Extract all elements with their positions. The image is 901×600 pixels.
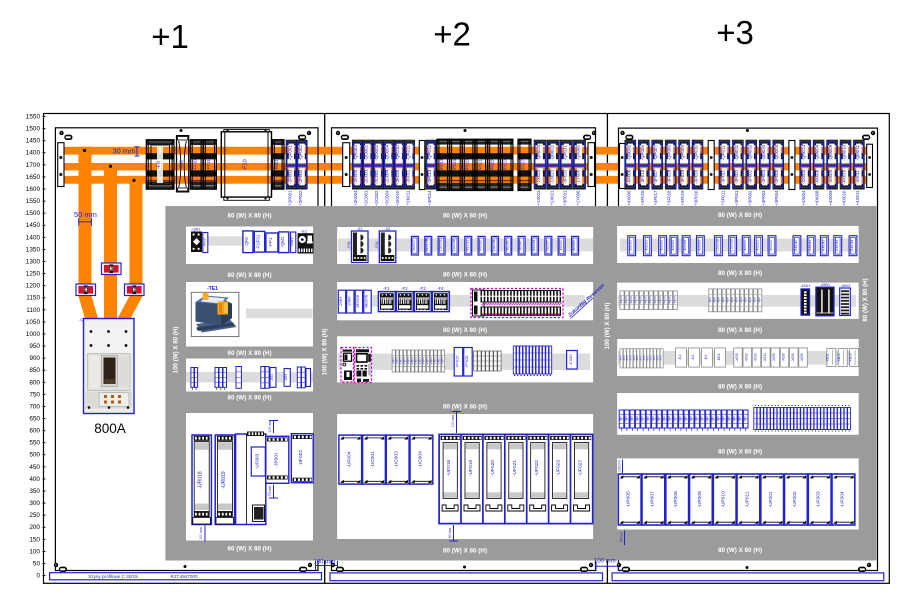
svg-text:-4X0: -4X0: [739, 297, 743, 304]
svg-text:800: 800: [29, 379, 40, 386]
svg-text:+1X021: +1X021: [549, 190, 554, 206]
svg-text:-X039: -X039: [800, 353, 804, 362]
svg-text:-2P001: -2P001: [287, 169, 292, 184]
svg-text:-4X011: -4X011: [855, 169, 860, 183]
svg-text:-QO004: -QO004: [385, 144, 390, 160]
svg-text:-K1: -K1: [678, 355, 682, 361]
svg-text:1250: 1250: [26, 271, 41, 278]
svg-text:-5X0: -5X0: [667, 416, 671, 422]
svg-text:-QM009: -QM009: [828, 144, 833, 160]
svg-text:+3P004: +3P004: [774, 190, 779, 206]
svg-text:750: 750: [29, 391, 40, 398]
svg-text:-48X0: -48X0: [663, 296, 667, 304]
svg-text:-1X023: -1X023: [536, 169, 541, 184]
svg-text:-1S501B: -1S501B: [730, 238, 734, 252]
svg-text:-2X01: -2X01: [440, 357, 444, 365]
svg-text:-KS101: -KS101: [756, 240, 760, 251]
svg-text:-UR018: -UR018: [198, 471, 204, 488]
svg-text:+2C004: +2C004: [385, 190, 390, 206]
svg-text:-UP008: -UP008: [673, 491, 679, 508]
svg-text:-3F017: -3F017: [653, 169, 658, 183]
svg-text:-QM032: -QM032: [747, 144, 752, 160]
svg-text:-KS063: -KS063: [671, 240, 675, 251]
svg-text:-1S500B: -1S500B: [715, 238, 719, 252]
svg-text:-UF003: -UF003: [816, 491, 822, 508]
svg-text:-QF0: -QF0: [244, 236, 249, 247]
svg-text:-QP014: -QP014: [427, 145, 432, 161]
svg-text:80 (W) X 80 (H): 80 (W) X 80 (H): [718, 384, 762, 391]
svg-text:-5X0: -5X0: [694, 416, 698, 422]
svg-text:-2C001: -2C001: [364, 169, 369, 184]
svg-text:-QB1: -QB1: [191, 227, 201, 232]
svg-text:350: 350: [29, 488, 40, 495]
svg-text:-3P011: -3P011: [720, 169, 725, 183]
svg-text:-24K6: -24K6: [347, 297, 351, 307]
svg-text:-FUFS1: -FUFS1: [256, 234, 261, 249]
svg-text:-QM1: -QM1: [280, 236, 285, 248]
svg-text:-5X0: -5X0: [683, 416, 687, 422]
svg-text:+3P001: +3P001: [734, 190, 739, 206]
svg-text:80 (W) X 80 (H): 80 (W) X 80 (H): [718, 270, 762, 277]
svg-text:-3P003: -3P003: [761, 169, 766, 184]
svg-text:-5X0: -5X0: [651, 416, 655, 422]
svg-text:-QM033: -QM033: [761, 144, 766, 160]
svg-text:-XD13: -XD13: [837, 353, 841, 363]
svg-text:-48X0: -48X0: [619, 296, 623, 304]
svg-text:-4X006: -4X006: [626, 169, 631, 184]
svg-text:+3: +3: [716, 14, 754, 51]
svg-text:80 mm: 80 mm: [448, 528, 452, 539]
svg-text:-S204Y: -S204Y: [519, 239, 523, 251]
svg-text:-49B1: -49B1: [820, 283, 830, 287]
svg-text:-KM043: -KM043: [835, 240, 839, 252]
svg-text:+4X008: +4X008: [815, 190, 820, 206]
svg-text:-1Y006: -1Y006: [576, 169, 581, 184]
svg-text:-F1: -F1: [383, 286, 390, 291]
svg-text:-KC031: -KC031: [465, 240, 469, 252]
svg-text:+2K004: +2K004: [353, 190, 358, 206]
svg-text:1150: 1150: [26, 295, 40, 302]
svg-text:+2: +2: [433, 16, 471, 53]
svg-text:100 mm: 100 mm: [594, 559, 616, 565]
svg-text:50 mm: 50 mm: [620, 532, 624, 542]
svg-text:60 (W) X 80 (H): 60 (W) X 80 (H): [227, 350, 271, 357]
svg-text:-4X0: -4X0: [730, 297, 734, 304]
svg-text:-F10: -F10: [243, 159, 249, 170]
svg-text:+3P002: +3P002: [747, 190, 752, 206]
svg-text:1050: 1050: [26, 319, 41, 326]
svg-text:-5X0: -5X0: [624, 416, 628, 422]
svg-text:1550: 1550: [26, 114, 41, 121]
svg-text:-48X0: -48X0: [658, 296, 662, 304]
svg-text:-UF003: -UF003: [254, 453, 259, 469]
svg-text:1400: 1400: [26, 234, 41, 241]
svg-text:-JP023: -JP023: [503, 158, 508, 172]
svg-text:-QM010: -QM010: [842, 144, 847, 160]
svg-text:-QM004: -QM004: [815, 144, 820, 160]
svg-text:-KS050: -KS050: [559, 240, 563, 251]
svg-text:1300: 1300: [26, 259, 41, 266]
svg-text:-UP007: -UP007: [649, 491, 655, 508]
svg-text:+4X009: +4X009: [828, 190, 833, 206]
svg-text:30 mm: 30 mm: [113, 147, 136, 156]
svg-text:+3P003: +3P003: [761, 190, 766, 206]
svg-text:-QP010: -QP010: [694, 145, 699, 161]
svg-text:-S205Y: -S205Y: [545, 239, 549, 251]
svg-text:-4X0: -4X0: [744, 297, 748, 304]
svg-text:-X02: -X02: [284, 374, 288, 382]
svg-text:+2K010: +2K010: [395, 190, 400, 206]
svg-text:-48X0: -48X0: [672, 296, 676, 304]
svg-text:1450: 1450: [26, 138, 41, 145]
svg-text:-1S203E: -1S203E: [492, 238, 496, 252]
svg-text:-JP021: -JP021: [477, 158, 482, 172]
svg-text:-QM022: -QM022: [549, 144, 554, 160]
svg-text:-5X0: -5X0: [737, 416, 741, 422]
svg-text:-E1: -E1: [301, 229, 308, 234]
svg-text:-W20: -W20: [202, 238, 206, 247]
svg-text:-XD11: -XD11: [826, 353, 830, 362]
svg-text:300: 300: [29, 500, 40, 507]
svg-text:-QM011: -QM011: [855, 144, 860, 160]
svg-text:-5X0: -5X0: [727, 416, 731, 422]
svg-text:-F0: -F0: [156, 161, 162, 169]
svg-text:-5X0: -5X0: [629, 416, 633, 422]
svg-text:150: 150: [29, 536, 40, 543]
svg-text:1450: 1450: [26, 222, 41, 229]
svg-text:-UP009: -UP009: [697, 491, 703, 508]
svg-text:1500: 1500: [26, 210, 41, 217]
svg-text:-4X1: -4X1: [659, 355, 663, 361]
svg-text:-KS060: -KS060: [629, 240, 633, 251]
svg-text:-UF021: -UF021: [512, 460, 518, 477]
svg-text:-2C002: -2C002: [374, 169, 379, 184]
svg-text:-JP001: -JP001: [273, 452, 279, 468]
svg-text:-3F019: -3F019: [680, 169, 685, 183]
svg-text:-UP011: -UP011: [744, 491, 750, 507]
svg-text:-4X009: -4X009: [828, 169, 833, 184]
svg-text:-3F015: -3F015: [640, 169, 645, 183]
svg-text:-KE30YB: -KE30YB: [356, 294, 360, 308]
svg-text:1550: 1550: [26, 198, 41, 205]
svg-text:-3P010: -3P010: [694, 169, 699, 184]
svg-text:-4X0: -4X0: [735, 297, 739, 304]
svg-text:-4X004: -4X004: [801, 169, 806, 184]
svg-text:-48X0: -48X0: [643, 296, 647, 304]
svg-text:80 (W) X 80 (H): 80 (W) X 80 (H): [227, 272, 271, 279]
svg-text:-M00: -M00: [179, 159, 184, 169]
svg-text:550: 550: [29, 440, 40, 447]
svg-text:100 (W) X 80 (H): 100 (W) X 80 (H): [322, 329, 329, 376]
svg-text:-X038: -X038: [791, 353, 795, 362]
svg-text:+4X010: +4X010: [842, 190, 847, 206]
svg-text:-5X0: -5X0: [635, 416, 639, 422]
svg-text:-QN006: -QN006: [626, 145, 631, 161]
svg-text:-KS064: -KS064: [683, 240, 687, 251]
svg-text:-P001: -P001: [274, 159, 279, 171]
svg-text:-KV060: -KV060: [572, 240, 576, 251]
svg-text:700: 700: [29, 403, 40, 410]
svg-text:+1: +1: [151, 18, 189, 55]
svg-text:-KS061: -KS061: [644, 240, 648, 251]
svg-text:1350: 1350: [26, 246, 41, 253]
svg-text:-X030: -X030: [735, 353, 739, 362]
svg-text:-QF002: -QF002: [298, 145, 303, 160]
svg-text:-F02: -F02: [375, 241, 379, 248]
svg-text:-UF022: -UF022: [534, 460, 540, 477]
svg-text:-4X0: -4X0: [717, 297, 721, 304]
svg-text:0: 0: [36, 573, 40, 580]
svg-text:-QM031: -QM031: [734, 144, 739, 160]
svg-text:-K3: -K3: [691, 355, 695, 361]
svg-text:-QP009: -QP009: [680, 145, 685, 161]
svg-text:850: 850: [29, 367, 40, 374]
svg-text:+2C002: +2C002: [374, 190, 379, 206]
svg-text:-4X0: -4X0: [708, 297, 712, 304]
svg-text:-2K004: -2K004: [353, 169, 358, 184]
svg-text:-QP011: -QP011: [720, 145, 725, 160]
svg-text:-JP014: -JP014: [439, 158, 444, 172]
svg-text:+3P011: +3P011: [720, 190, 725, 205]
svg-text:80 (W) X 80 (H): 80 (W) X 80 (H): [718, 327, 762, 334]
svg-text:-48X0: -48X0: [624, 296, 628, 304]
svg-text:1100: 1100: [26, 307, 40, 314]
svg-text:80 (W) X 80 (H): 80 (W) X 80 (H): [443, 548, 487, 555]
svg-text:80 (W) X 80 (H): 80 (W) X 80 (H): [227, 546, 271, 553]
svg-text:50 mm: 50 mm: [74, 210, 97, 219]
svg-text:-CX30: -CX30: [568, 354, 573, 366]
svg-text:Szyny profilowe C 30/15: Szyny profilowe C 30/15: [88, 574, 138, 579]
svg-text:-5X0: -5X0: [646, 416, 650, 422]
svg-text:-5X0: -5X0: [673, 416, 677, 422]
svg-text:80 (W) X 80 (H): 80 (W) X 80 (H): [227, 213, 271, 220]
svg-text:-JP022: -JP022: [490, 158, 495, 172]
svg-text:-3P004: -3P004: [774, 169, 779, 184]
svg-text:-2K010: -2K010: [395, 169, 400, 184]
svg-text:-UR019: -UR019: [221, 471, 227, 488]
svg-text:+2P001: +2P001: [287, 190, 292, 206]
svg-text:-4X0: -4X0: [757, 297, 761, 304]
svg-text:-QO004: -QO004: [774, 144, 779, 160]
svg-text:-49U1: -49U1: [800, 284, 810, 288]
svg-text:-UC004: -UC004: [417, 451, 423, 468]
svg-text:-KS102: -KS102: [769, 240, 773, 251]
svg-text:-02: -02: [384, 226, 391, 231]
svg-text:-5X0: -5X0: [689, 416, 693, 422]
svg-text:-QK011: -QK011: [406, 145, 411, 160]
svg-text:-UF019: -UF019: [468, 460, 474, 477]
svg-text:-QP008: -QP008: [667, 145, 672, 161]
svg-text:1600: 1600: [26, 186, 41, 193]
svg-text:75 mm: 75 mm: [268, 486, 272, 497]
svg-text:-KM044: -KM044: [850, 240, 854, 252]
svg-text:+4X004: +4X004: [801, 190, 806, 206]
svg-text:-RE30YB: -RE30YB: [365, 294, 369, 309]
svg-text:-4X0: -4X0: [712, 297, 716, 304]
svg-text:600: 600: [29, 428, 40, 435]
svg-text:-2C004: -2C004: [385, 169, 390, 184]
svg-text:-KM041: -KM041: [808, 240, 812, 252]
svg-text:-4X0: -4X0: [753, 297, 757, 304]
svg-text:+3F017: +3F017: [653, 190, 658, 206]
svg-text:650: 650: [29, 416, 40, 423]
svg-text:1700: 1700: [26, 162, 41, 169]
svg-text:-UP010: -UP010: [721, 491, 727, 508]
svg-text:-24K4: -24K4: [339, 297, 343, 307]
svg-text:-3P031: -3P031: [562, 169, 567, 184]
svg-text:1400: 1400: [26, 150, 41, 157]
svg-text:-TE1: -TE1: [207, 286, 218, 292]
svg-text:80 (W) X 80 (H): 80 (W) X 80 (H): [443, 404, 487, 411]
svg-text:-QM023: -QM023: [536, 144, 541, 160]
svg-text:-JP020: -JP020: [465, 158, 470, 172]
svg-text:100 (W) X 80 (H): 100 (W) X 80 (H): [173, 327, 180, 374]
svg-text:-QO001: -QO001: [364, 144, 369, 160]
svg-text:-XD14: -XD14: [848, 353, 852, 363]
svg-text:80 (W) X 80 (H): 80 (W) X 80 (H): [862, 278, 869, 321]
svg-text:100: 100: [29, 548, 40, 555]
svg-text:-QN014: -QN014: [801, 145, 806, 161]
svg-text:-S201YB: -S201YB: [425, 238, 429, 252]
svg-text:-FP016: -FP016: [464, 356, 469, 369]
svg-text:250: 250: [29, 512, 40, 519]
svg-text:-KM040: -KM040: [794, 240, 798, 252]
svg-text:-X035: -X035: [772, 353, 776, 362]
svg-text:1200: 1200: [26, 283, 41, 290]
svg-text:-5X0: -5X0: [732, 416, 736, 422]
svg-text:1500: 1500: [26, 126, 41, 133]
svg-text:+1Y006: +1Y006: [576, 190, 581, 206]
svg-text:+3F015: +3F015: [640, 190, 645, 206]
svg-text:-48X0: -48X0: [648, 296, 652, 304]
svg-text:-X01: -X01: [270, 374, 274, 382]
svg-text:50: 50: [33, 561, 41, 568]
svg-text:-KE1: -KE1: [717, 354, 721, 362]
svg-text:100 mm: 100 mm: [199, 527, 203, 539]
svg-text:-1S200B: -1S200B: [452, 238, 456, 252]
svg-text:-X032: -X032: [744, 353, 748, 362]
svg-text:-KC030: -KC030: [479, 240, 483, 252]
svg-text:-UF004: -UF004: [839, 491, 845, 508]
svg-text:-5X0: -5X0: [705, 416, 709, 422]
svg-text:-QP007: -QP007: [653, 145, 658, 161]
svg-text:-01: -01: [357, 226, 364, 231]
svg-text:1000: 1000: [26, 331, 41, 338]
svg-text:-QO002: -QO002: [374, 144, 379, 160]
svg-text:-X033: -X033: [754, 353, 758, 362]
svg-text:+3F019: +3F019: [680, 190, 685, 206]
svg-text:-F3: -F3: [419, 286, 426, 291]
svg-text:-1X021: -1X021: [549, 169, 554, 184]
svg-text:-48X0: -48X0: [668, 296, 672, 304]
svg-text:200: 200: [29, 524, 40, 531]
svg-text:-5X0: -5X0: [640, 416, 644, 422]
svg-text:-4X0: -4X0: [748, 297, 752, 304]
svg-text:-UF022: -UF022: [298, 450, 304, 466]
svg-text:-UF023: -UF023: [556, 460, 562, 477]
svg-text:+1X023: +1X023: [536, 190, 541, 206]
svg-text:100 mm: 100 mm: [618, 460, 622, 472]
svg-text:-3P001: -3P001: [734, 169, 739, 184]
svg-text:950: 950: [29, 343, 40, 350]
svg-text:+2K011: +2K011: [406, 190, 411, 205]
svg-text:80 (W) X 80 (H): 80 (W) X 80 (H): [718, 212, 762, 219]
svg-text:-UF002: -UF002: [792, 491, 798, 508]
svg-text:-QV006: -QV006: [576, 145, 581, 161]
svg-text:-5X0: -5X0: [721, 416, 725, 422]
svg-text:105 mm: 105 mm: [268, 420, 272, 432]
svg-text:900: 900: [29, 355, 40, 362]
svg-text:-1S201E: -1S201E: [439, 238, 443, 252]
svg-text:-5X0: -5X0: [656, 416, 660, 422]
svg-text:-UF004: -UF004: [346, 451, 352, 468]
svg-text:-4X0: -4X0: [721, 297, 725, 304]
svg-text:-JP027: -JP027: [521, 158, 526, 172]
svg-text:-5X0: -5X0: [619, 416, 623, 422]
svg-text:-F4: -F4: [437, 286, 444, 291]
svg-text:-4X010: -4X010: [842, 169, 847, 184]
svg-text:500: 500: [29, 452, 40, 459]
svg-text:-4X008: -4X008: [815, 169, 820, 184]
svg-text:-F01: -F01: [347, 241, 351, 248]
svg-text:-JP019: -JP019: [452, 158, 457, 172]
svg-text:80 (W) X 80 (H): 80 (W) X 80 (H): [443, 327, 487, 334]
svg-text:+4X011: +4X011: [855, 190, 860, 205]
svg-text:-UC001: -UC001: [370, 451, 376, 468]
svg-text:80 (W) X 80 (H): 80 (W) X 80 (H): [718, 449, 762, 456]
svg-text:-4X0: -4X0: [726, 297, 730, 304]
svg-text:-S201Y: -S201Y: [412, 239, 416, 251]
svg-text:-5X0: -5X0: [716, 416, 720, 422]
svg-text:-UF018: -UF018: [446, 460, 452, 477]
svg-text:-X036: -X036: [782, 353, 786, 362]
svg-text:-UF020: -UF020: [490, 460, 496, 477]
svg-text:-KS065: -KS065: [697, 240, 701, 251]
svg-text:-KC034: -KC034: [532, 240, 536, 252]
svg-text:100 mm: 100 mm: [451, 415, 455, 427]
svg-text:-2P002: -2P002: [298, 169, 303, 184]
svg-text:80 (W) X 80 (H): 80 (W) X 80 (H): [718, 547, 762, 554]
svg-text:-F2: -F2: [401, 286, 408, 291]
svg-text:-5X0: -5X0: [678, 416, 682, 422]
svg-text:-5X0: -5X0: [700, 416, 704, 422]
svg-text:100 (W) X 80 (H): 100 (W) X 80 (H): [604, 303, 611, 350]
svg-text:-UP005: -UP005: [626, 491, 632, 508]
svg-text:+3F018: +3F018: [667, 190, 672, 206]
svg-text:-FF11: -FF11: [206, 159, 211, 171]
svg-text:-5X0: -5X0: [743, 416, 747, 422]
svg-text:-EMV: -EMV: [290, 237, 294, 247]
svg-text:-QP031: -QP031: [562, 145, 567, 161]
svg-text:450: 450: [29, 464, 40, 471]
svg-text:-KS100: -KS100: [743, 240, 747, 251]
svg-text:-5X0: -5X0: [710, 416, 714, 422]
svg-text:-UF027: -UF027: [578, 460, 584, 477]
svg-text:80 (W) X 80 (H): 80 (W) X 80 (H): [443, 213, 487, 220]
svg-text:-5X0: -5X0: [662, 416, 666, 422]
svg-text:-48V2: -48V2: [840, 284, 850, 288]
svg-text:+3P010: +3P010: [694, 190, 699, 206]
svg-text:-UF001: -UF001: [768, 491, 774, 508]
svg-text:-QF001: -QF001: [287, 145, 292, 160]
svg-text:-2K011: -2K011: [406, 169, 411, 183]
svg-text:-QK004: -QK004: [353, 145, 358, 161]
svg-text:+2C001: +2C001: [364, 190, 369, 206]
svg-text:-QK010: -QK010: [395, 145, 400, 161]
svg-text:-3P014: -3P014: [427, 169, 432, 184]
svg-text:1650: 1650: [26, 174, 41, 181]
svg-text:-48X0: -48X0: [629, 296, 633, 304]
